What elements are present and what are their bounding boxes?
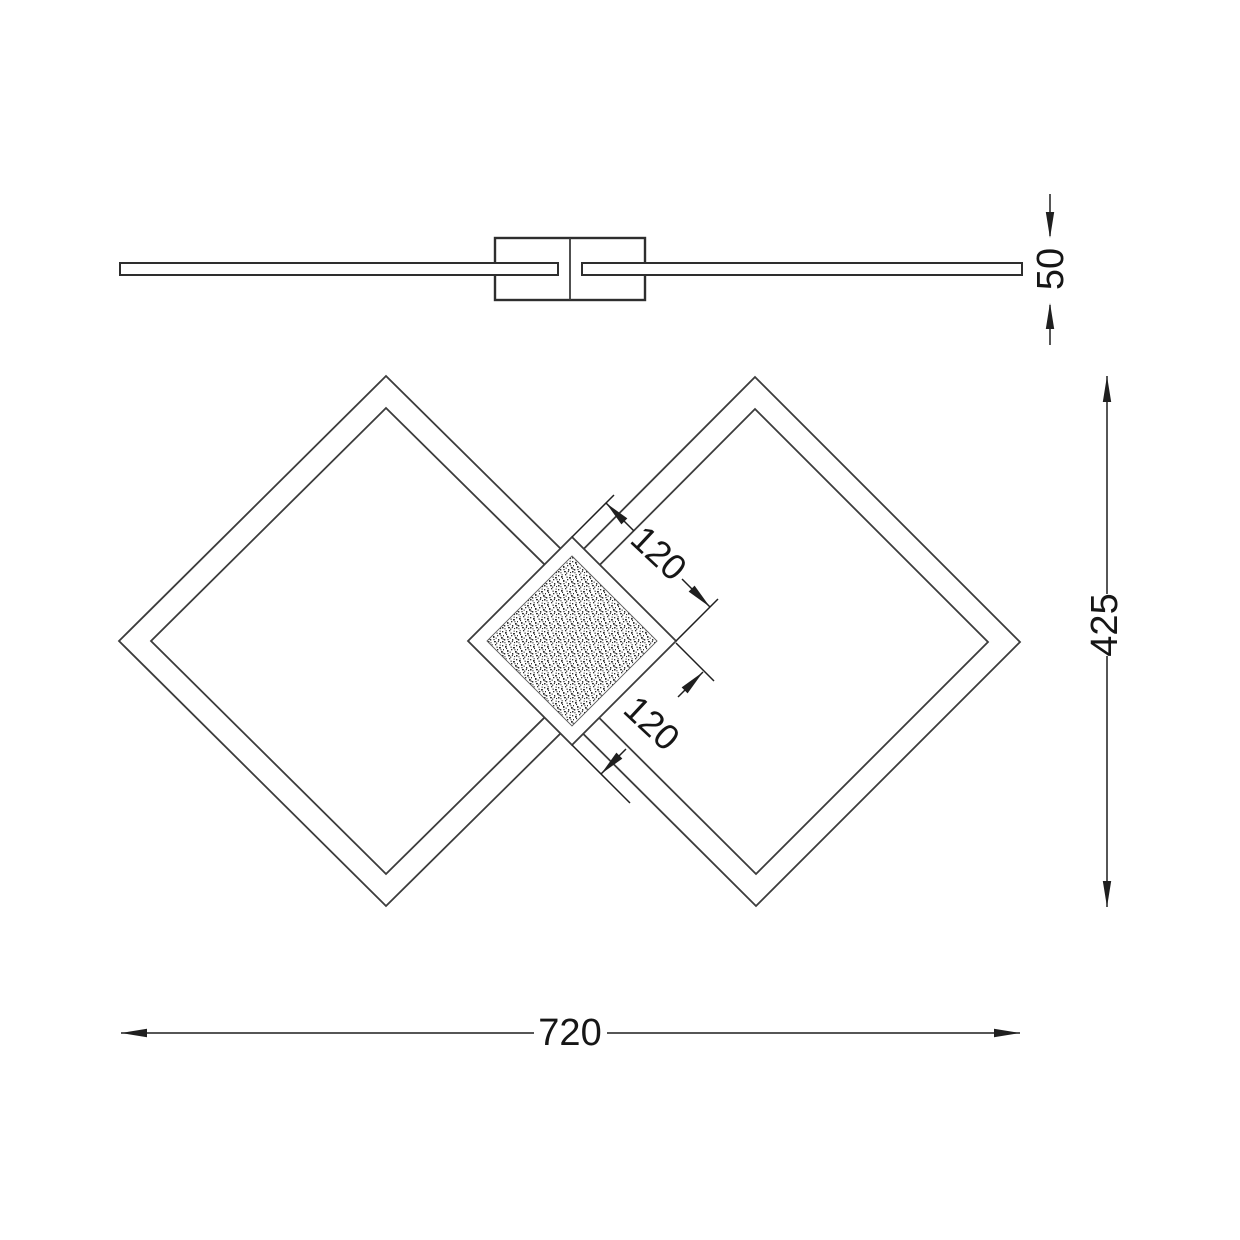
dim-label-720: 720 <box>538 1012 601 1054</box>
rail-left <box>120 263 558 275</box>
arrowhead-720-right <box>994 1029 1020 1037</box>
arrowhead-50-top <box>1046 212 1054 238</box>
arrowhead-120u-nw <box>603 500 627 524</box>
plan-view <box>119 376 1020 906</box>
arrowhead-425-bottom <box>1103 881 1111 907</box>
arrowhead-120l-ne <box>682 669 706 693</box>
arrowhead-120l-sw <box>598 753 622 777</box>
arrowhead-50-bottom <box>1046 303 1054 329</box>
rail-right <box>582 263 1022 275</box>
dimension-425: 425 <box>1084 376 1126 907</box>
side-profile-view <box>120 238 1022 300</box>
arrowhead-720-left <box>121 1029 147 1037</box>
drawing-canvas: 50 120 120 425 <box>0 0 1240 1240</box>
technical-drawing: 50 120 120 425 <box>0 0 1240 1240</box>
dim-label-50: 50 <box>1030 248 1072 290</box>
arrowhead-425-top <box>1103 376 1111 402</box>
dim-label-120-upper: 120 <box>623 518 695 589</box>
dimension-50: 50 <box>1030 194 1072 345</box>
arrowhead-120u-se <box>689 586 713 610</box>
dim-label-120-lower: 120 <box>616 688 688 759</box>
dim-label-425: 425 <box>1084 593 1126 656</box>
dimension-720: 720 <box>121 1012 1020 1054</box>
